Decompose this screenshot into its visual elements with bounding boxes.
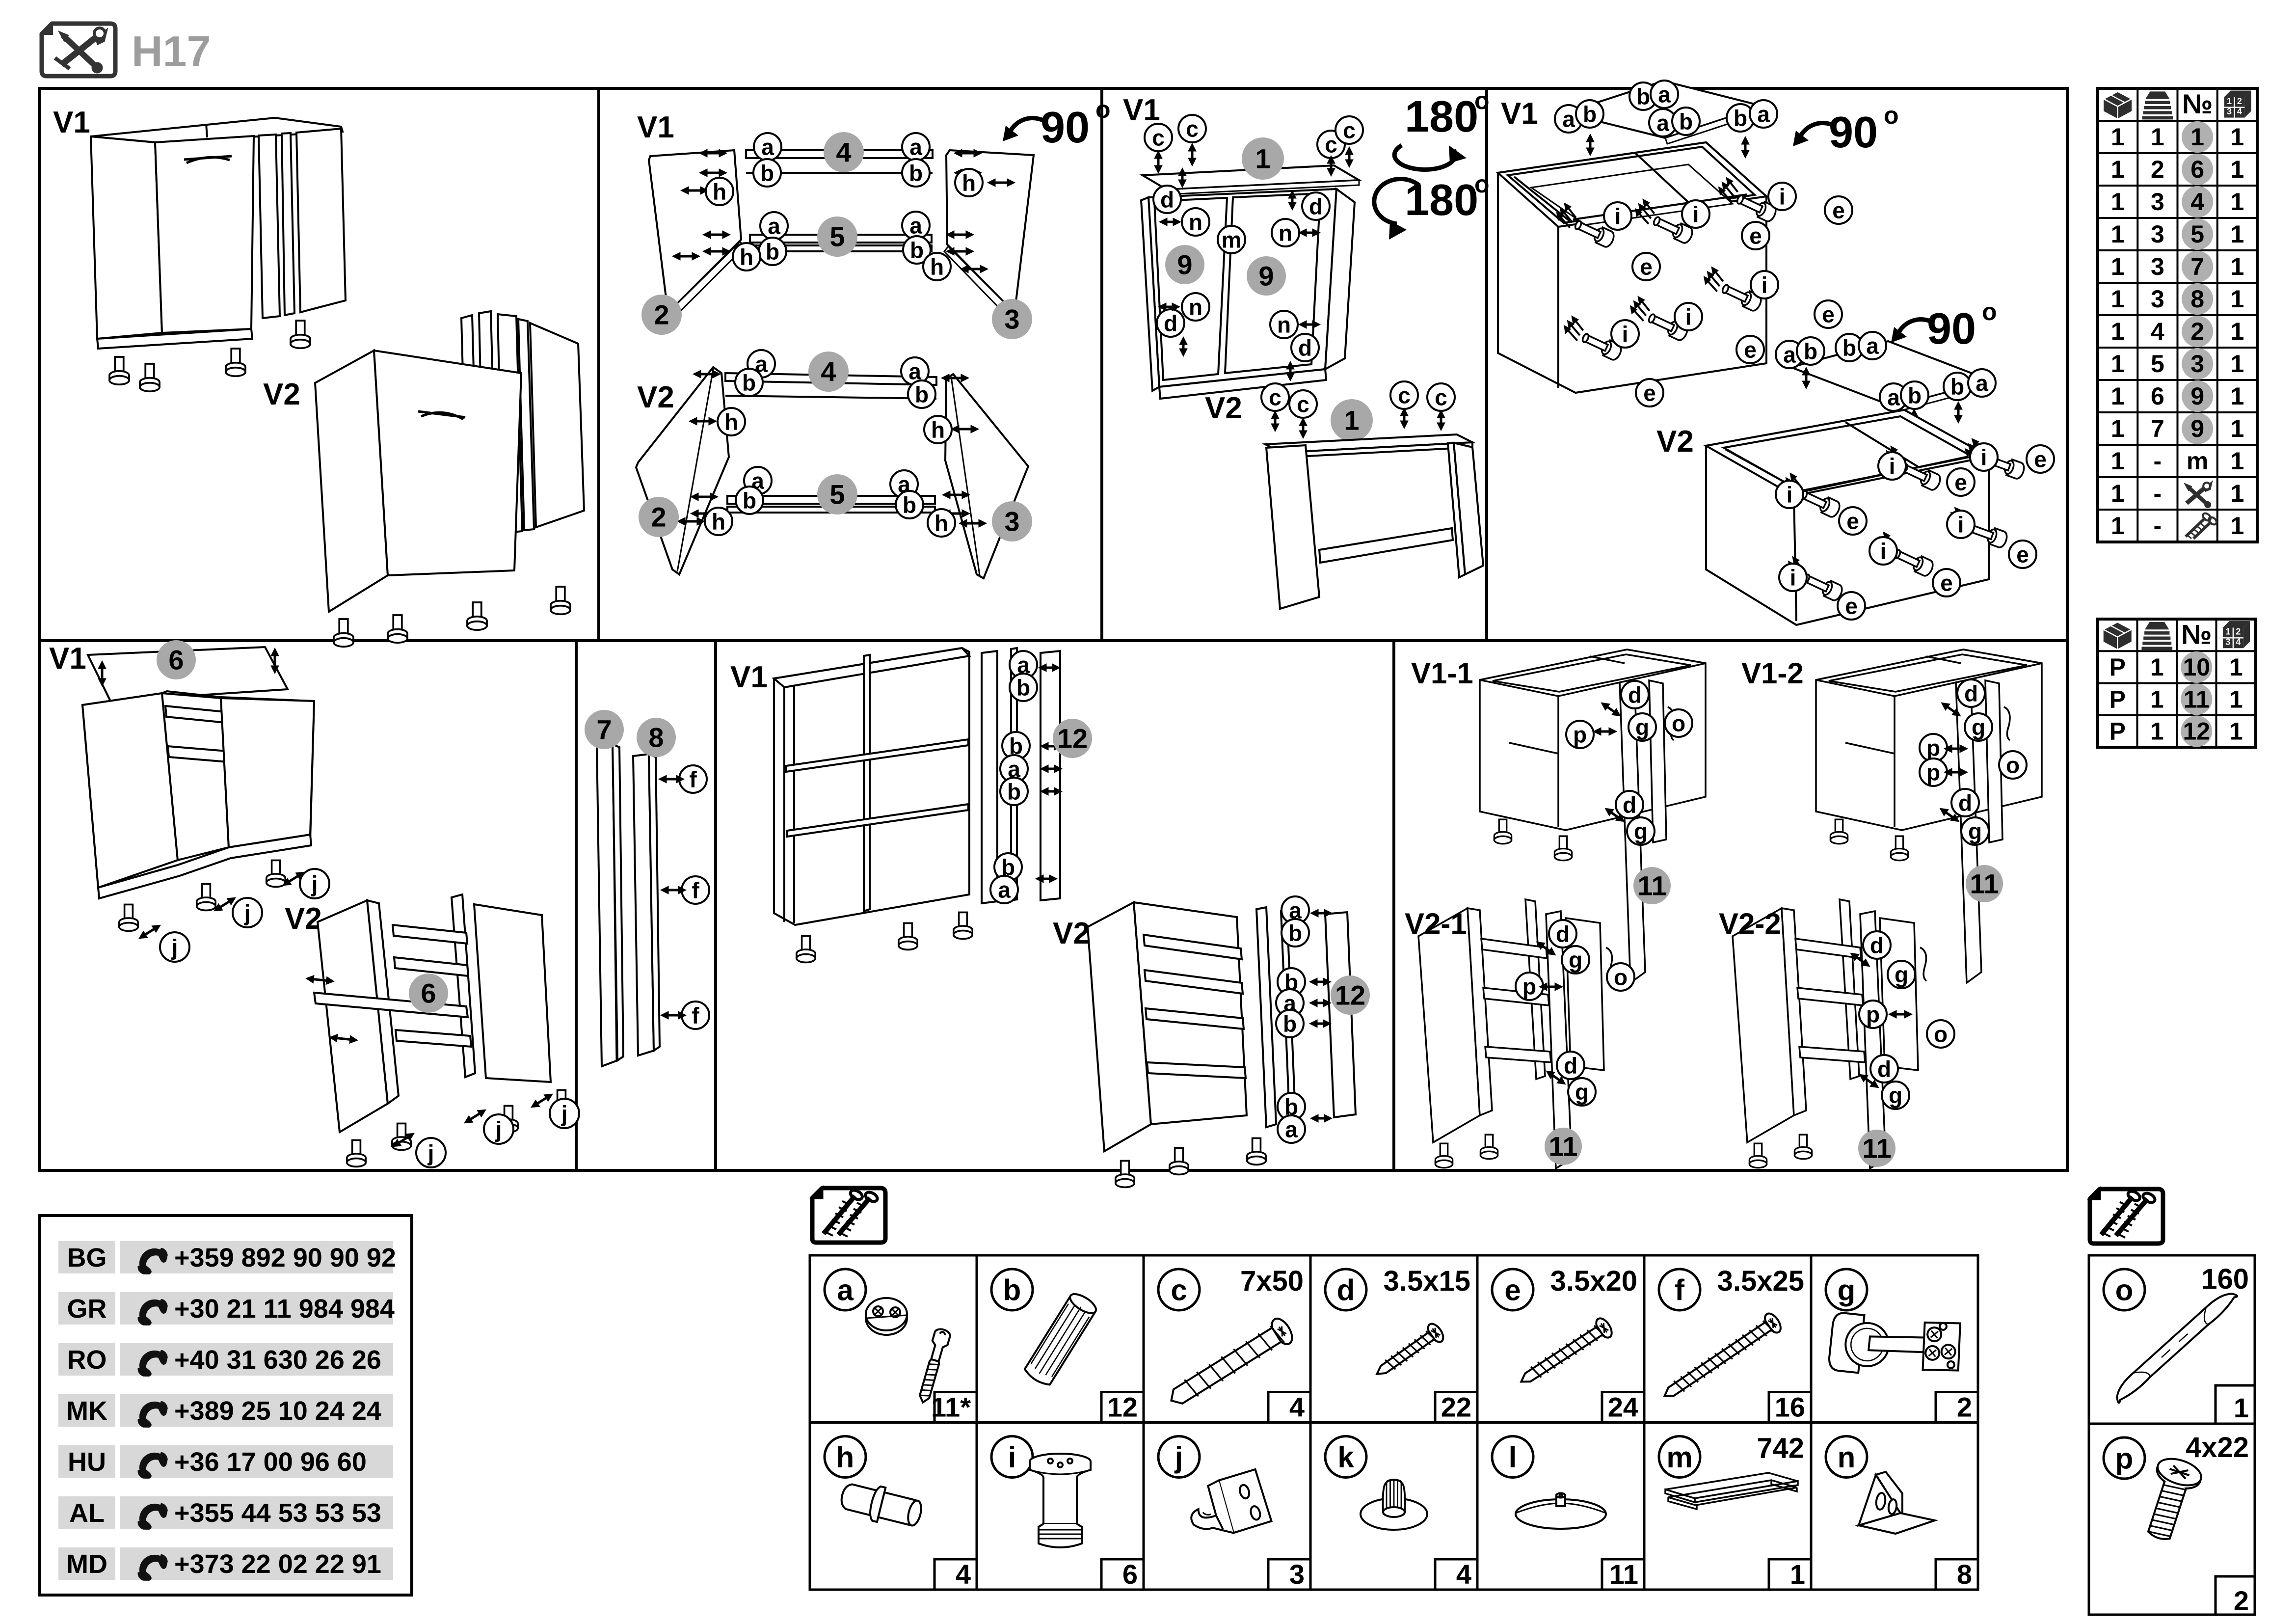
svg-text:AL: AL — [69, 1498, 105, 1528]
svg-text:p: p — [1926, 760, 1940, 785]
svg-text:V2-1: V2-1 — [1405, 907, 1467, 940]
svg-text:+359 892 90 90 92: +359 892 90 90 92 — [174, 1243, 396, 1272]
svg-text:3: 3 — [2225, 637, 2230, 647]
svg-text:p: p — [1573, 722, 1587, 748]
svg-text:MD: MD — [66, 1549, 107, 1579]
svg-text:3: 3 — [2151, 285, 2164, 313]
svg-text:4: 4 — [2236, 637, 2241, 647]
svg-text:1: 1 — [2150, 718, 2164, 745]
svg-text:3.5x25: 3.5x25 — [1717, 1265, 1804, 1297]
svg-text:8: 8 — [648, 722, 664, 753]
svg-text:22: 22 — [1441, 1392, 1471, 1423]
svg-text:o: o — [1982, 298, 1997, 325]
svg-text:4: 4 — [2237, 107, 2242, 116]
svg-text:e: e — [2034, 447, 2047, 472]
svg-text:b: b — [743, 488, 756, 514]
svg-text:V2-2: V2-2 — [1719, 907, 1781, 940]
svg-text:11: 11 — [2184, 685, 2210, 713]
svg-text:11: 11 — [1637, 870, 1666, 901]
svg-text:11: 11 — [1609, 1559, 1638, 1590]
svg-text:j: j — [1175, 1441, 1183, 1474]
svg-text:3: 3 — [2151, 188, 2164, 216]
svg-text:d: d — [1160, 187, 1174, 213]
svg-text:g: g — [1889, 1083, 1902, 1109]
svg-text:o: o — [1672, 711, 1685, 736]
svg-text:g: g — [1968, 819, 1982, 844]
svg-text:5: 5 — [2151, 350, 2164, 378]
svg-text:a: a — [1656, 110, 1669, 136]
svg-text:+373 22 02 22 91: +373 22 02 22 91 — [174, 1549, 381, 1579]
svg-text:i: i — [1958, 512, 1964, 538]
svg-text:1: 1 — [2190, 123, 2204, 151]
svg-text:1: 1 — [2225, 627, 2230, 637]
svg-text:j: j — [244, 900, 251, 926]
svg-text:1: 1 — [2229, 653, 2243, 681]
svg-text:9: 9 — [2190, 415, 2204, 442]
svg-text:h: h — [740, 244, 753, 270]
svg-text:b: b — [1908, 383, 1922, 408]
svg-text:b: b — [909, 161, 923, 186]
svg-text:b: b — [1016, 675, 1030, 701]
svg-text:i: i — [1762, 272, 1768, 298]
svg-text:e: e — [2016, 542, 2029, 568]
svg-text:5: 5 — [829, 479, 845, 510]
svg-text:k: k — [1337, 1441, 1354, 1474]
svg-text:g: g — [1635, 715, 1649, 740]
svg-text:d: d — [1870, 933, 1884, 958]
svg-text:V2: V2 — [1656, 425, 1694, 459]
svg-text:g: g — [1634, 819, 1648, 844]
svg-text:e: e — [1832, 198, 1845, 223]
svg-text:1: 1 — [2111, 285, 2125, 313]
svg-text:b: b — [1679, 109, 1693, 135]
svg-text:g: g — [1972, 715, 1985, 740]
svg-text:b: b — [1003, 1274, 1021, 1307]
svg-text:j: j — [495, 1117, 502, 1142]
svg-text:h: h — [930, 254, 944, 280]
svg-text:9: 9 — [1177, 249, 1192, 280]
svg-text:P: P — [2109, 653, 2126, 681]
svg-text:7: 7 — [2151, 415, 2164, 442]
svg-text:b: b — [915, 382, 929, 407]
svg-text:1: 1 — [1790, 1559, 1805, 1590]
svg-text:e: e — [1940, 570, 1953, 596]
svg-text:f: f — [692, 878, 699, 903]
svg-text:180: 180 — [1405, 92, 1478, 141]
svg-text:1: 1 — [2230, 318, 2244, 345]
svg-text:i: i — [1008, 1441, 1016, 1474]
svg-text:2: 2 — [651, 502, 666, 533]
svg-text:m: m — [1222, 227, 1242, 253]
svg-text:1: 1 — [1344, 405, 1359, 436]
svg-text:g: g — [1575, 1080, 1589, 1105]
svg-text:d: d — [1623, 792, 1636, 818]
svg-text:b: b — [903, 492, 916, 518]
svg-text:b: b — [760, 161, 774, 186]
svg-text:1: 1 — [2229, 718, 2243, 745]
svg-text:V1-1: V1-1 — [1411, 657, 1473, 690]
svg-text:8: 8 — [2190, 285, 2204, 313]
svg-text:+355 44 53 53 53: +355 44 53 53 53 — [174, 1498, 381, 1528]
svg-text:e: e — [1504, 1274, 1521, 1307]
svg-text:f: f — [689, 767, 697, 792]
svg-text:d: d — [1564, 1053, 1577, 1079]
svg-text:c: c — [1297, 392, 1309, 417]
svg-text:24: 24 — [1608, 1392, 1638, 1423]
svg-text:11: 11 — [1862, 1133, 1891, 1164]
svg-text:-: - — [2154, 512, 2162, 540]
svg-text:h: h — [836, 1441, 854, 1474]
svg-text:4: 4 — [2151, 318, 2164, 345]
svg-text:h: h — [713, 179, 726, 205]
svg-text:10: 10 — [2183, 653, 2210, 681]
svg-text:b: b — [742, 370, 756, 396]
svg-text:1: 1 — [2111, 382, 2125, 410]
svg-text:4x22: 4x22 — [2186, 1432, 2249, 1463]
svg-text:a: a — [1757, 102, 1770, 127]
svg-text:a: a — [1866, 333, 1879, 359]
svg-text:V1-2: V1-2 — [1741, 657, 1804, 690]
svg-text:c: c — [1435, 385, 1447, 410]
svg-text:m: m — [1666, 1441, 1692, 1474]
svg-text:3: 3 — [1004, 506, 1019, 537]
svg-text:№: № — [2182, 88, 2213, 119]
svg-text:d: d — [1309, 194, 1323, 219]
svg-text:e: e — [1744, 337, 1757, 363]
svg-text:16: 16 — [1775, 1392, 1805, 1423]
svg-text:7: 7 — [596, 714, 612, 745]
svg-text:a: a — [1976, 371, 1988, 396]
svg-text:4: 4 — [2190, 188, 2204, 216]
svg-text:d: d — [1337, 1274, 1355, 1307]
svg-text:j: j — [171, 935, 178, 960]
svg-text:-: - — [2154, 480, 2162, 507]
svg-text:p: p — [2115, 1442, 2134, 1475]
svg-text:6: 6 — [2190, 156, 2204, 183]
svg-text:i: i — [1779, 184, 1786, 210]
svg-text:2: 2 — [654, 299, 669, 330]
svg-text:+40 31 630 26 26: +40 31 630 26 26 — [174, 1345, 381, 1375]
svg-text:3: 3 — [2227, 107, 2232, 116]
svg-text:V1: V1 — [1123, 93, 1160, 127]
svg-text:3.5x15: 3.5x15 — [1384, 1265, 1470, 1297]
svg-text:-: - — [2154, 447, 2162, 475]
svg-text:d: d — [1298, 335, 1312, 361]
svg-text:g: g — [1569, 947, 1582, 973]
svg-text:1: 1 — [2111, 188, 2125, 216]
svg-text:1: 1 — [2111, 480, 2125, 507]
svg-text:e: e — [1845, 594, 1858, 619]
svg-text:1: 1 — [1255, 143, 1270, 174]
svg-text:6: 6 — [2151, 382, 2164, 410]
svg-text:e: e — [1822, 302, 1835, 327]
svg-text:5: 5 — [2190, 220, 2204, 248]
svg-text:l: l — [1509, 1441, 1517, 1474]
svg-text:c: c — [1171, 1274, 1187, 1307]
svg-text:1: 1 — [2111, 156, 2125, 183]
svg-text:V2: V2 — [637, 380, 674, 414]
svg-text:11: 11 — [1970, 868, 1999, 899]
svg-text:1: 1 — [2227, 96, 2232, 106]
svg-text:1: 1 — [2230, 512, 2244, 540]
svg-text:m: m — [2187, 447, 2208, 475]
svg-text:1: 1 — [2150, 653, 2164, 681]
svg-text:b: b — [1007, 779, 1021, 805]
svg-text:90: 90 — [1829, 108, 1878, 157]
svg-text:6: 6 — [168, 645, 184, 676]
svg-text:2: 2 — [2151, 156, 2164, 183]
svg-text:i: i — [1615, 204, 1621, 229]
svg-text:1: 1 — [2111, 253, 2125, 280]
svg-text:11: 11 — [1548, 1131, 1577, 1162]
svg-text:j: j — [561, 1101, 568, 1127]
svg-text:1: 1 — [2230, 447, 2244, 475]
svg-text:3: 3 — [1004, 304, 1019, 335]
svg-text:V1: V1 — [730, 660, 768, 694]
svg-text:2: 2 — [2234, 1585, 2249, 1616]
svg-text:1: 1 — [2230, 123, 2244, 151]
svg-text:a: a — [998, 877, 1011, 903]
svg-text:i: i — [1693, 202, 1699, 227]
svg-text:p: p — [1926, 735, 1940, 761]
svg-text:i: i — [1685, 304, 1692, 330]
svg-text:90: 90 — [1927, 304, 1976, 353]
svg-text:o: o — [1614, 965, 1628, 990]
svg-text:o: o — [1934, 1022, 1948, 1047]
svg-text:h: h — [724, 409, 738, 435]
svg-text:i: i — [1889, 454, 1896, 479]
svg-text:1: 1 — [2111, 318, 2125, 345]
svg-text:i: i — [1790, 565, 1796, 591]
svg-text:+389 25 10 24 24: +389 25 10 24 24 — [174, 1396, 381, 1426]
svg-text:P: P — [2109, 718, 2126, 745]
svg-text:a: a — [1658, 82, 1671, 108]
svg-text:c: c — [1398, 383, 1411, 408]
svg-text:c: c — [1325, 132, 1337, 158]
svg-text:a: a — [1887, 385, 1900, 410]
svg-text:V2: V2 — [285, 902, 322, 936]
svg-text:e: e — [1749, 223, 1762, 249]
svg-text:h: h — [931, 417, 945, 443]
svg-text:1: 1 — [2230, 220, 2244, 248]
svg-text:V2: V2 — [1205, 391, 1242, 425]
svg-text:BG: BG — [67, 1243, 107, 1272]
svg-text:o: o — [1474, 87, 1490, 114]
svg-text:1: 1 — [2150, 685, 2164, 713]
svg-text:160: 160 — [2201, 1263, 2249, 1295]
svg-text:8: 8 — [1957, 1559, 1972, 1590]
svg-text:1: 1 — [2111, 350, 2125, 378]
svg-text:3: 3 — [2190, 350, 2204, 378]
svg-text:p: p — [1866, 1002, 1880, 1028]
svg-text:9: 9 — [2190, 382, 2204, 410]
svg-text:d: d — [1877, 1056, 1891, 1082]
svg-text:1: 1 — [2111, 512, 2125, 540]
svg-text:o: o — [2115, 1274, 2134, 1307]
svg-text:V1: V1 — [637, 110, 674, 144]
svg-text:+30 21 11 984 984: +30 21 11 984 984 — [174, 1294, 395, 1324]
svg-text:b: b — [1950, 374, 1964, 400]
svg-text:12: 12 — [1335, 980, 1365, 1011]
svg-text:V2: V2 — [1053, 917, 1090, 950]
svg-text:h: h — [712, 509, 725, 535]
svg-text:3: 3 — [2151, 253, 2164, 280]
svg-text:c: c — [1343, 118, 1356, 143]
svg-text:a: a — [1285, 1117, 1298, 1142]
svg-text:b: b — [1288, 920, 1302, 946]
svg-text:a: a — [1783, 342, 1796, 368]
svg-text:d: d — [1958, 790, 1972, 816]
svg-text:c: c — [1152, 125, 1165, 151]
svg-text:7x50: 7x50 — [1240, 1265, 1304, 1297]
svg-text:90: 90 — [1041, 103, 1090, 152]
svg-text:b: b — [1734, 106, 1747, 131]
svg-text:1: 1 — [2111, 220, 2125, 248]
svg-text:3: 3 — [2151, 220, 2164, 248]
svg-text:1: 1 — [2111, 415, 2125, 442]
svg-text:4: 4 — [1456, 1559, 1471, 1590]
svg-text:1: 1 — [2151, 123, 2164, 151]
svg-text:1: 1 — [2230, 382, 2244, 410]
svg-text:2: 2 — [2237, 96, 2242, 106]
svg-text:12: 12 — [1057, 723, 1088, 754]
svg-text:+36 17 00 96 60: +36 17 00 96 60 — [174, 1447, 367, 1477]
svg-text:g: g — [1838, 1274, 1856, 1307]
svg-text:1: 1 — [2229, 685, 2243, 713]
svg-text:a: a — [768, 214, 780, 239]
svg-text:GR: GR — [67, 1294, 107, 1324]
svg-text:1: 1 — [2111, 123, 2125, 151]
svg-text:b: b — [910, 238, 924, 263]
svg-text:6: 6 — [1122, 1559, 1138, 1590]
svg-text:n: n — [1277, 312, 1291, 338]
svg-text:1: 1 — [2230, 253, 2244, 280]
svg-text:c: c — [1186, 116, 1199, 142]
svg-text:i: i — [1880, 539, 1887, 564]
svg-text:3.5x20: 3.5x20 — [1550, 1265, 1637, 1297]
svg-text:d: d — [1556, 921, 1570, 947]
svg-text:1: 1 — [2234, 1392, 2249, 1423]
svg-text:2: 2 — [2190, 318, 2204, 345]
svg-text:1: 1 — [2230, 285, 2244, 313]
svg-text:b: b — [1842, 335, 1856, 361]
svg-text:2: 2 — [1957, 1392, 1972, 1423]
svg-text:RO: RO — [67, 1345, 107, 1375]
svg-text:V2: V2 — [263, 378, 300, 411]
svg-text:5: 5 — [829, 221, 845, 252]
svg-text:4: 4 — [956, 1559, 971, 1590]
svg-text:e: e — [1954, 470, 1967, 495]
svg-text:b: b — [766, 239, 779, 265]
svg-text:1: 1 — [2230, 415, 2244, 442]
svg-text:2: 2 — [2236, 627, 2241, 637]
svg-text:o: o — [1474, 170, 1490, 198]
svg-text:o: o — [1095, 96, 1111, 123]
svg-text:j: j — [311, 871, 318, 897]
svg-text:f: f — [692, 1003, 699, 1029]
svg-text:i: i — [1981, 445, 1987, 470]
svg-text:6: 6 — [421, 978, 436, 1009]
svg-text:4: 4 — [821, 356, 836, 387]
svg-text:a: a — [909, 213, 922, 239]
svg-text:P: P — [2109, 685, 2126, 713]
svg-text:n: n — [1189, 295, 1202, 320]
svg-text:d: d — [1964, 681, 1978, 706]
svg-text:a: a — [761, 135, 774, 160]
svg-text:e: e — [1640, 254, 1653, 280]
svg-text:742: 742 — [1757, 1433, 1804, 1464]
svg-text:1: 1 — [2230, 480, 2244, 507]
svg-text:d: d — [1164, 311, 1177, 336]
svg-text:f: f — [1675, 1274, 1685, 1307]
svg-text:1: 1 — [2230, 156, 2244, 183]
svg-text:9: 9 — [1258, 261, 1274, 292]
svg-text:b: b — [1583, 102, 1597, 127]
svg-text:H17: H17 — [132, 27, 211, 76]
svg-text:c: c — [1269, 385, 1281, 410]
svg-text:7: 7 — [2190, 253, 2204, 280]
svg-text:1: 1 — [2111, 447, 2125, 475]
svg-text:3: 3 — [1289, 1559, 1305, 1590]
svg-text:12: 12 — [1107, 1392, 1138, 1423]
svg-text:j: j — [427, 1140, 434, 1166]
svg-text:a: a — [837, 1274, 854, 1307]
svg-text:i: i — [1622, 322, 1629, 347]
svg-text:n: n — [1189, 210, 1202, 235]
svg-text:e: e — [1846, 509, 1859, 534]
svg-text:11*: 11* — [931, 1392, 971, 1423]
svg-text:g: g — [1895, 962, 1908, 988]
svg-text:4: 4 — [836, 137, 851, 168]
svg-text:h: h — [962, 170, 976, 196]
svg-text:V1: V1 — [1501, 97, 1538, 131]
svg-text:o: o — [2006, 753, 2020, 778]
svg-text:12: 12 — [2183, 718, 2210, 745]
svg-text:1: 1 — [2230, 188, 2244, 216]
svg-text:V1: V1 — [53, 106, 90, 139]
svg-text:HU: HU — [68, 1447, 106, 1477]
svg-text:№: № — [2181, 619, 2212, 650]
svg-text:n: n — [1279, 220, 1292, 246]
svg-text:b: b — [1636, 84, 1650, 109]
svg-text:n: n — [1838, 1441, 1856, 1474]
svg-text:e: e — [1643, 380, 1656, 406]
svg-text:a: a — [1562, 107, 1575, 132]
svg-text:1: 1 — [2230, 350, 2244, 378]
svg-text:i: i — [1787, 482, 1793, 508]
svg-text:V1: V1 — [49, 642, 86, 676]
svg-text:4: 4 — [1289, 1392, 1305, 1423]
svg-text:p: p — [1522, 974, 1536, 1000]
svg-text:o: o — [1884, 102, 1899, 129]
svg-text:a: a — [909, 135, 922, 160]
svg-text:b: b — [1804, 339, 1817, 364]
svg-text:h: h — [934, 511, 948, 536]
svg-text:d: d — [1628, 682, 1642, 708]
svg-text:b: b — [1283, 1011, 1297, 1037]
svg-text:MK: MK — [66, 1396, 107, 1426]
